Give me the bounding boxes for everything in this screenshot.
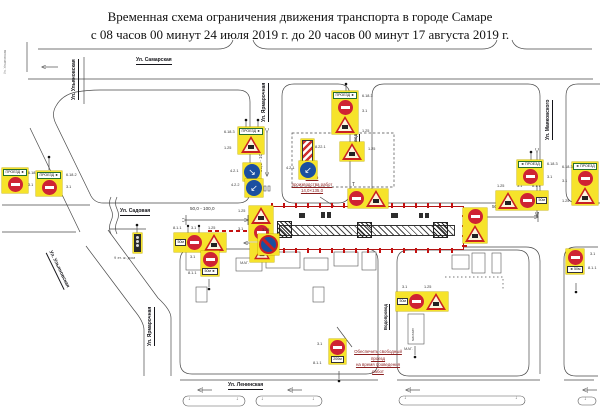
road-works-sign-icon xyxy=(335,116,355,133)
sign-code: 1.25 xyxy=(238,210,245,214)
no-entry-sign-icon xyxy=(349,191,364,206)
portable-traffic-light xyxy=(133,233,142,253)
watermain-label-south: Водопровод xyxy=(384,304,390,330)
sign-code: 4.2.1 xyxy=(286,167,294,171)
sign-group-zone-east xyxy=(463,208,487,243)
free-passage-note-line1: Обеспечить свободный проезд xyxy=(354,349,402,362)
no-entry-sign-icon xyxy=(8,177,23,192)
sign-group-free-passage: 200м xyxy=(329,339,346,364)
sign-group-far-right-lower: ◄ 50м xyxy=(566,249,584,274)
road-works-sign-icon xyxy=(342,143,362,160)
sign-group-works-warning xyxy=(340,142,364,161)
equipment-icon xyxy=(391,213,398,218)
sign-code: 1.25 xyxy=(362,130,369,134)
detour-plate: ◄ ПРОЕЗД xyxy=(573,163,597,170)
road-works-sign-icon xyxy=(204,234,224,251)
sign-group-zone-north xyxy=(348,189,388,208)
distance-plate: 200м xyxy=(331,356,344,363)
excavation-pit-icon xyxy=(277,221,292,238)
equipment-icon xyxy=(419,213,423,218)
building-label-mag2: МАГ. xyxy=(404,347,413,351)
sign-code: 6.18.3 xyxy=(224,131,235,135)
sign-code: 1.25 xyxy=(208,227,215,231)
detour-right-sign-icon: ↘ xyxy=(244,164,260,180)
sign-group-west-approach: 50м xyxy=(174,233,226,252)
sign-code: 3.28 xyxy=(262,229,269,233)
sign-code: 3.1 xyxy=(517,185,522,189)
sign-code: 8.22.1 xyxy=(315,146,326,150)
sign-code: 1.25 xyxy=(562,200,569,204)
no-entry-sign-icon xyxy=(520,193,535,208)
sign-code: 3.1 xyxy=(402,286,407,290)
sign-group-ulyanovskaya: ПРОЕЗД ► xyxy=(36,171,62,196)
sign-group-far-right-upper: ◄ ПРОЕЗД xyxy=(572,162,598,205)
island-arrow: ↓ xyxy=(515,396,518,401)
no-entry-sign-icon xyxy=(568,250,583,265)
equipment-icon xyxy=(327,212,331,218)
road-works-sign-icon xyxy=(498,192,518,209)
sign-group-midstreet-top: ПРОЕЗД ► xyxy=(332,91,358,134)
road-works-sign-icon xyxy=(465,225,485,242)
no-entry-sign-icon xyxy=(42,180,57,195)
traffic-light-icon xyxy=(134,234,141,252)
sign-code: 1.25 xyxy=(424,286,431,290)
sign-code: 3.1 xyxy=(317,343,322,347)
sadovaya-street-lines xyxy=(2,197,146,234)
sign-code: 6.18.3 xyxy=(362,95,373,99)
no-entry-sign-icon xyxy=(338,100,353,115)
dim-west: 50,0 - 100,0 xyxy=(190,206,215,211)
sign-code: 8.1.1 xyxy=(532,185,540,189)
sign-code: 8.1.1 xyxy=(588,267,596,271)
road-works-sign-icon xyxy=(251,207,271,224)
sign-code: 6.18.2 xyxy=(66,174,77,178)
sign-code: 3.1 xyxy=(190,256,195,260)
sign-code: 8.1.1 xyxy=(188,272,196,276)
free-passage-note: Обеспечить свободный проезд на время про… xyxy=(354,349,402,375)
sign-group-mayakovskogo: ◄ ПРОЕЗД xyxy=(517,160,543,185)
street-label-ulyanovskaya-north: Ул. Ульяновская xyxy=(72,59,79,100)
sign-code: 3.1 xyxy=(547,176,552,180)
sign-group-no-stopping xyxy=(258,234,279,255)
sign-group-detour-left: ↙ xyxy=(299,161,317,179)
island-arrow: ↓ xyxy=(584,397,587,402)
sign-code: 1.25 xyxy=(368,148,375,152)
road-works-sign-icon xyxy=(575,187,595,204)
sign-code: 6.18.3 xyxy=(562,166,573,170)
sign-code: 4.2.1 xyxy=(230,170,238,174)
sign-code: 6.18.3 xyxy=(547,163,558,167)
buildings xyxy=(186,252,501,344)
traffic-light-tag: Т xyxy=(352,183,355,188)
street-label-yarmarochnaya-south: Ул. Ярмарочная xyxy=(148,307,155,346)
equipment-icon xyxy=(299,213,305,218)
road-works-sign-icon xyxy=(366,190,386,207)
sign-code: 1.25 xyxy=(497,185,504,189)
island-arrow: ↓ xyxy=(188,397,191,402)
distance-plate: 50м xyxy=(397,298,408,305)
sign-group-south-mid: 50м xyxy=(396,292,448,311)
sign-group-detour-left2: ↙ xyxy=(245,179,263,197)
equipment-icon xyxy=(425,213,429,218)
excavation-pit-icon xyxy=(433,222,448,238)
sign-code: 3.1 xyxy=(562,180,567,184)
distance-plate: 50м ► xyxy=(202,268,218,275)
barrier-ticks-bottom xyxy=(271,248,461,253)
free-passage-note-line2: на время проведения работ xyxy=(354,362,402,375)
street-label-mayakovskogo: Ул. Маяковского xyxy=(546,100,553,140)
road-works-sign-icon xyxy=(241,136,261,153)
sign-group-left-edge: ПРОЕЗД ► xyxy=(2,168,28,193)
no-entry-sign-icon xyxy=(187,235,202,250)
no-entry-sign-icon xyxy=(203,252,218,267)
work-zone xyxy=(268,206,464,250)
no-stopping-sign-icon xyxy=(259,235,278,254)
traffic-scheme-canvas: Временная схема ограничения движения тра… xyxy=(0,0,600,419)
distance-plate: 50м xyxy=(536,197,547,204)
sign-code: 8.1.1 xyxy=(173,227,181,231)
detour-plate: ПРОЕЗД ► xyxy=(3,169,27,176)
sign-code: 1.25 xyxy=(224,147,231,151)
distance-plate: ◄ 50м xyxy=(567,266,583,273)
sign-group-yarmarochnaya: ПРОЕЗД ► xyxy=(238,127,264,154)
no-entry-sign-icon xyxy=(409,294,424,309)
sign-group-east-approach: 50м xyxy=(496,191,548,210)
street-label-yarmarochnaya-north: Ул. Ярмарочная xyxy=(262,83,269,122)
worksite-note-line2: производства работ xyxy=(284,182,340,189)
island-arrow: ↓ xyxy=(236,397,239,402)
street-label-leninskaya: Ул. Ленинская xyxy=(228,383,263,390)
street-tag-edge: Ул. Ульяновская xyxy=(3,50,7,74)
no-entry-sign-icon xyxy=(578,171,593,186)
detour-left-sign-icon: ↙ xyxy=(300,162,316,178)
distance-plate: 50м xyxy=(175,239,186,246)
detour-left-sign-icon: ↙ xyxy=(246,180,262,196)
street-label-samarskaya: Ул. Самарская xyxy=(136,58,172,65)
detour-plate: ПРОЕЗД ► xyxy=(239,128,263,135)
detour-plate: ПРОЕЗД ► xyxy=(37,172,61,179)
no-entry-sign-icon xyxy=(468,209,483,224)
island-arrow: ↓ xyxy=(261,397,264,402)
sign-code: 3.1 xyxy=(238,228,243,232)
building-label-dom9: 9 эт. ж. дом xyxy=(114,256,135,260)
sign-code: 3.1 xyxy=(191,227,196,231)
sign-code: 8.1.1 xyxy=(313,362,321,366)
sign-code: 3.1 xyxy=(590,253,595,257)
no-entry-sign-icon xyxy=(523,169,538,184)
obstacle-marker-icon xyxy=(302,140,313,163)
equipment-icon xyxy=(321,212,325,218)
sign-group-west-approach2: 50м ► xyxy=(201,251,219,276)
building-label-mag: МАГ. xyxy=(240,261,249,265)
road-works-sign-icon xyxy=(426,293,446,310)
worksite-note-line3: 14,0×135,0 xyxy=(284,188,340,195)
island-arrow: ↓ xyxy=(404,396,407,401)
sign-code: 4.2.2 xyxy=(231,184,239,188)
island-arrow: ↓ xyxy=(312,397,315,402)
excavation-pit-icon xyxy=(357,222,372,238)
building-label-shop: магазин xyxy=(412,328,416,341)
street-label-sadovaya: Ул. Садовая xyxy=(120,209,150,216)
sign-code: 3.1 xyxy=(28,184,33,188)
samarskaya-street-lines xyxy=(27,40,593,79)
detour-plate: ПРОЕЗД ► xyxy=(333,92,357,99)
sign-code: 3.1 xyxy=(362,110,367,114)
no-entry-sign-icon xyxy=(330,340,345,355)
sign-code: 3.1 xyxy=(66,186,71,190)
detour-plate: ◄ ПРОЕЗД xyxy=(518,161,542,168)
